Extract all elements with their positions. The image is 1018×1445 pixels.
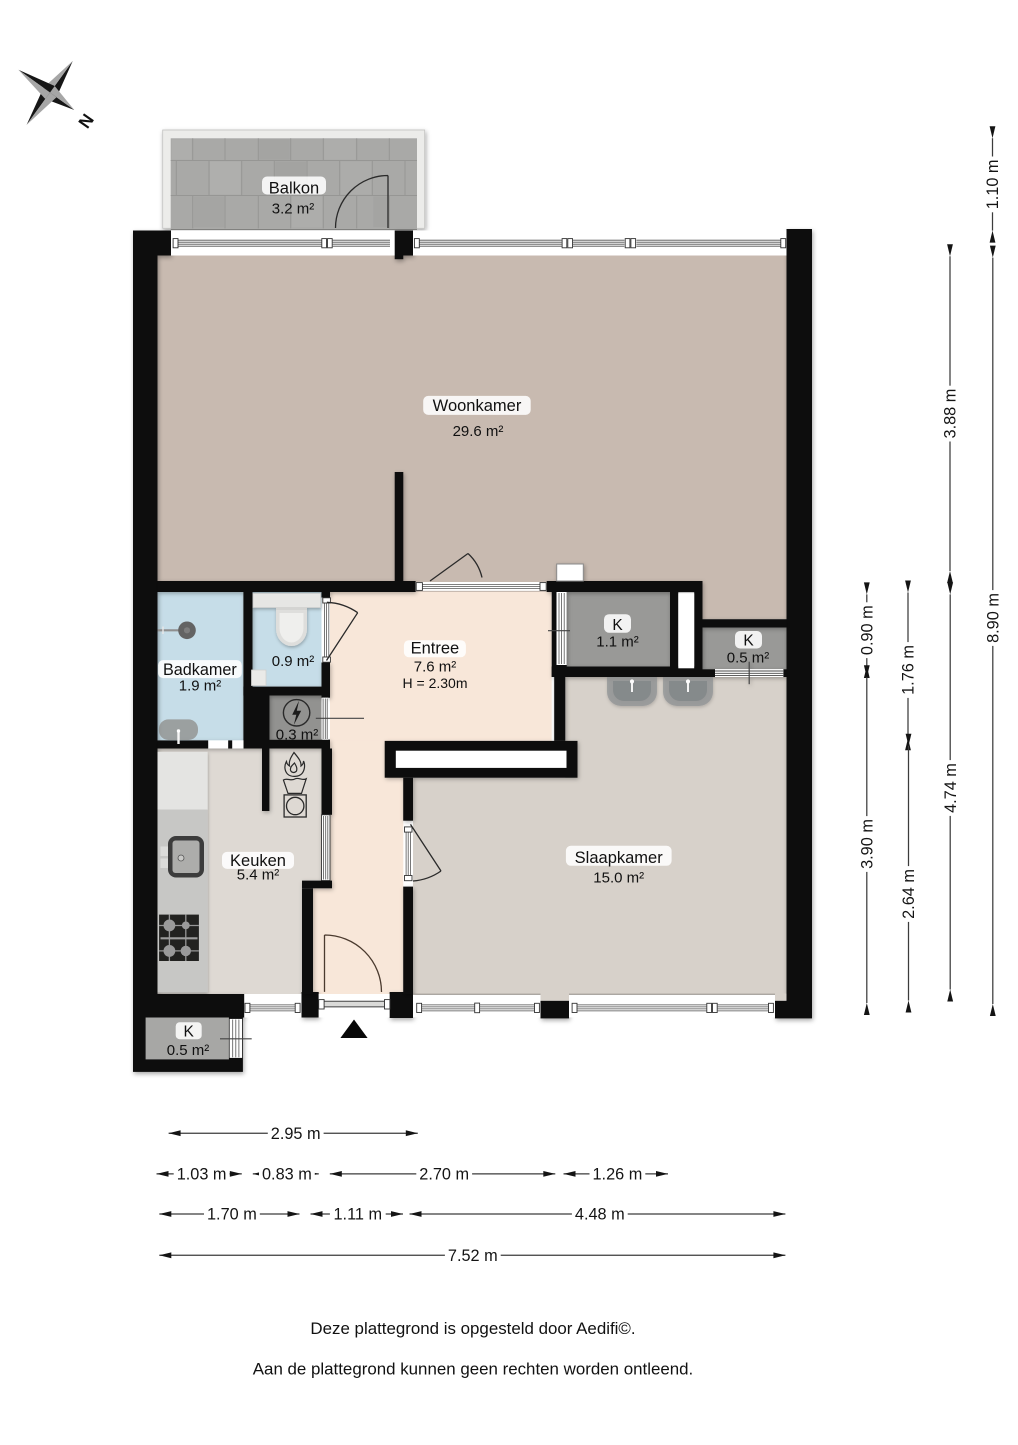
svg-text:4.74 m: 4.74 m <box>942 763 960 813</box>
svg-text:Balkon: Balkon <box>269 180 319 198</box>
svg-text:H = 2.30m: H = 2.30m <box>403 675 468 691</box>
svg-text:Entree: Entree <box>411 640 460 658</box>
svg-text:1.03 m: 1.03 m <box>177 1166 227 1184</box>
svg-text:0.83 m: 0.83 m <box>262 1166 312 1184</box>
svg-text:1.70 m: 1.70 m <box>207 1206 257 1224</box>
svg-text:0.3 m²: 0.3 m² <box>276 727 319 744</box>
svg-text:7.52 m: 7.52 m <box>448 1247 498 1265</box>
svg-text:1.76 m: 1.76 m <box>900 645 918 695</box>
svg-text:15.0 m²: 15.0 m² <box>593 869 644 886</box>
svg-text:2.70 m: 2.70 m <box>419 1166 469 1184</box>
svg-text:Woonkamer: Woonkamer <box>433 397 522 415</box>
svg-text:Aan de plattegrond kunnen geen: Aan de plattegrond kunnen geen rechten w… <box>253 1360 693 1379</box>
svg-text:1.10 m: 1.10 m <box>984 160 1002 210</box>
svg-text:0.5 m²: 0.5 m² <box>727 650 770 667</box>
svg-text:1.1 m²: 1.1 m² <box>596 634 639 651</box>
svg-text:0.5 m²: 0.5 m² <box>167 1042 210 1059</box>
svg-text:3.90 m: 3.90 m <box>859 819 877 869</box>
svg-text:K: K <box>612 617 623 634</box>
svg-text:1.26 m: 1.26 m <box>593 1166 643 1184</box>
svg-text:1.11 m: 1.11 m <box>334 1206 383 1224</box>
svg-text:7.6 m²: 7.6 m² <box>414 659 457 676</box>
svg-text:4.48 m: 4.48 m <box>575 1206 625 1224</box>
svg-text:K: K <box>184 1024 195 1041</box>
svg-text:3.2 m²: 3.2 m² <box>272 201 315 218</box>
svg-text:2.64 m: 2.64 m <box>900 869 918 919</box>
svg-text:Slaapkamer: Slaapkamer <box>575 849 664 867</box>
svg-text:0.9 m²: 0.9 m² <box>272 653 315 670</box>
svg-text:5.4 m²: 5.4 m² <box>237 867 280 884</box>
svg-text:3.88 m: 3.88 m <box>942 389 960 439</box>
svg-text:1.9 m²: 1.9 m² <box>179 678 222 695</box>
svg-text:8.90 m: 8.90 m <box>985 593 1003 643</box>
svg-text:Deze plattegrond is opgesteld: Deze plattegrond is opgesteld door Aedif… <box>310 1319 635 1338</box>
svg-text:0.90 m: 0.90 m <box>859 605 877 655</box>
svg-text:29.6 m²: 29.6 m² <box>453 423 504 440</box>
svg-text:Badkamer: Badkamer <box>163 661 237 679</box>
svg-text:2.95 m: 2.95 m <box>271 1125 321 1143</box>
svg-text:K: K <box>743 633 754 650</box>
